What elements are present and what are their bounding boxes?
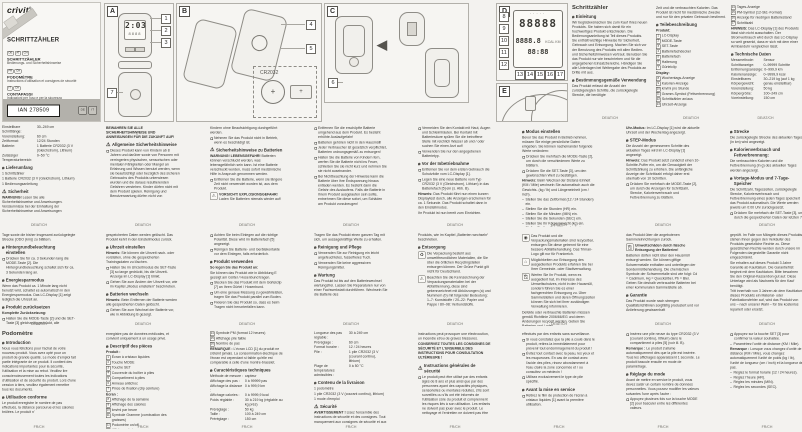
numbered-part-item: 9Kalorien-Anzeige	[656, 81, 726, 86]
band-lang-badge: IT	[89, 106, 98, 115]
manual-scan-page: crivit® SCHRITTZÄHLER DEATCH SCHRITTZÄHL…	[0, 0, 802, 432]
section-marker-icon	[418, 162, 421, 165]
section-heading-text: Sicherheitshinweise zu Batterien	[216, 147, 282, 153]
icon-paragraph-body: Das Produkt und die Verpackungsmateriali…	[531, 234, 594, 256]
part-number: 14	[731, 5, 736, 10]
figure-label: E	[499, 86, 510, 97]
lang-badge: CH	[13, 86, 20, 91]
part-number: 2	[106, 360, 111, 365]
part-number: 12	[656, 97, 661, 102]
group-subtitle: Indicazioni per l'uso e per la sicurezza	[7, 97, 98, 101]
part-number: 1	[106, 355, 111, 360]
column-content: Einstellbare Schrittlänge:30–249 cmVorei…	[2, 125, 76, 214]
callout-line	[281, 24, 305, 25]
column: instructions peut provoquer une électroc…	[418, 330, 492, 429]
section-heading: Bestimmungsgemäße Verwendung	[572, 78, 648, 84]
spec-label: Zulässiger Temperaturbereich:	[2, 153, 37, 162]
paragraph: Die Anzahl der gemessenen Schritte des a…	[626, 144, 700, 158]
part-name: Touche MODE	[112, 360, 135, 365]
part-name: Affichage de la semaine	[112, 397, 149, 402]
notice-lead: Uhr-Modus:	[626, 126, 646, 130]
warning-icon: ⚠	[106, 142, 110, 147]
part-name: Écran à cristaux liquides	[112, 355, 150, 360]
section-heading-text: Wartung	[318, 272, 335, 278]
notice-paragraph: WARNUNG! LEBENSGEFAHR! Batterien können …	[210, 153, 284, 176]
warning-icon: ⚠	[418, 365, 422, 370]
bullet-item: Fixieren Sie das Produkt so, dass es bei…	[210, 300, 284, 309]
section-heading: Energiesparmodus	[2, 277, 76, 283]
spec-row: Poids réglable :30 à 219 kg (réglable au…	[210, 398, 284, 407]
part-name: Compartiment à piles	[112, 376, 145, 381]
paragraph: Nous vous félicitons pour l'achat de vot…	[2, 346, 76, 391]
figure-label: A	[107, 6, 118, 17]
spec-row: Voreinstellung:60 cm	[2, 134, 76, 139]
dash-item: Paramétrez l'unité de distance (KM / Mil…	[730, 341, 802, 346]
section-heading: Introduction	[2, 340, 76, 346]
paragraph: 1 Bedienungsanleitung	[2, 181, 76, 186]
callout-number: 6	[328, 78, 338, 88]
notice-lead: Hinweis:	[106, 298, 120, 302]
column: Modus einstellenBevor Sie das Produkt in…	[522, 124, 596, 227]
bullet-item: Entfernen Sie die Batterie, wenn sie län…	[210, 177, 284, 191]
section-heading-text: Sécurité	[320, 404, 337, 410]
column-title: Podomètre	[2, 330, 76, 337]
spec-value: 0 à 999,9 km	[245, 384, 284, 393]
column-content: Longueur des pas réglable :30 à 249 cmPr…	[314, 331, 388, 424]
spec-label: Voreinstellung:	[731, 96, 764, 101]
battery-type-label: CR2032	[260, 70, 278, 76]
section-heading-text: Introduction	[6, 340, 31, 346]
column-footer: DE/AT/CH	[333, 224, 370, 228]
part-name: Anzeige für niedrigen Batteriestand	[737, 16, 792, 21]
icon-paragraph-body: Laden Sie Batterien niemals wieder auf!	[219, 197, 281, 201]
part-number: 9	[656, 81, 661, 86]
section-heading-text: Contenu de la livraison	[318, 379, 365, 385]
notice-lead: WARNUNG! LEBENSGEFAHR!	[210, 154, 261, 158]
language-group-fr: FRCH PODOMÈTRE Instructions d'utilisatio…	[7, 65, 98, 83]
bullet-item: Legen Sie eine neue Batterie vom Typ CR2…	[418, 177, 492, 191]
part-name: SET-Taste	[662, 44, 678, 49]
battery-cell-icon: +	[261, 80, 285, 104]
device-screen: 2:03 8888	[124, 20, 146, 40]
section-marker-icon	[210, 260, 213, 263]
column: Vermeiden Sie den Kontakt mit Haut, Auge…	[418, 124, 492, 227]
column-footer: DE/AT/CH	[541, 224, 578, 228]
numbered-part-item: 4Couvercle du boîtier à piles	[106, 370, 180, 375]
section-heading-text: Descriptif des pièces	[110, 343, 153, 349]
spec-value: 30–249 cm	[37, 125, 76, 134]
paragraph: effectués par des enfants sans surveilla…	[522, 332, 596, 337]
time-digits: 88:88	[514, 48, 562, 56]
figure-c-panel: C 6 ◀	[324, 3, 469, 103]
part-name: Symbole Gramme (combustion des graisses)	[112, 413, 180, 422]
holster-slot	[407, 22, 417, 36]
column-footer: DE/AT/CH	[674, 117, 709, 121]
section-marker-icon	[731, 53, 734, 56]
spec-label: Préréglage :	[314, 340, 349, 345]
column-footer: DE/AT/CH	[437, 323, 474, 327]
section-heading-text: Batterien wechseln	[110, 291, 149, 297]
language-group-it: ITCH CONTAPASSI Indicazioni per l'uso e …	[7, 82, 98, 100]
bullet-item: Bei Nichtbeachtung der Hinweise kann die…	[314, 174, 388, 206]
bullet-item: Entfernen Sie vor dem ersten Gebrauch di…	[418, 167, 492, 176]
column-content: enregistre pas de données médicales, et …	[106, 332, 180, 430]
paragraph: Avant de mettre en service le produit, v…	[626, 378, 700, 396]
dash-item: Réglez le format horaire (12 / 24 heures…	[730, 370, 802, 375]
paragraph: Das Produkt erfasst die Anzahl der zurüc…	[572, 84, 648, 98]
section-marker-icon	[106, 293, 109, 296]
column-content: StreckeDie zurückgelegte Strecke des akt…	[730, 129, 802, 220]
section-heading-text: Caractéristiques techniques	[214, 368, 271, 374]
spec-label: Longueur des pas réglable :	[314, 331, 349, 340]
section-marker-icon	[2, 342, 5, 345]
paragraph: gespeicherten Daten werden gelöscht. Das…	[106, 233, 180, 242]
icon-paragraph: ⚠VORSICHT! EXPLOSIONSGEFAHR! Laden Sie B…	[210, 192, 284, 201]
cover-content: crivit® SCHRITTZÄHLER DEATCH SCHRITTZÄHL…	[3, 3, 100, 121]
section-heading-text: Garantie	[630, 292, 647, 298]
part-number: 10	[106, 408, 111, 413]
notice-paragraph: Hinweis: Sie können die Uhrzeit nach- od…	[106, 251, 180, 265]
column: StreckeDie zurückgelegte Strecke des akt…	[730, 124, 802, 227]
column-content: Achten Sie beim Einlegen auf die richtig…	[210, 233, 284, 309]
column-footer: FR/CH	[21, 426, 58, 430]
section-marker-icon	[626, 373, 629, 376]
belt-holster	[399, 12, 425, 46]
section-marker-icon	[210, 369, 213, 372]
section-marker-icon	[730, 177, 733, 180]
paragraph: Tage sowie die bisher insgesamt zurückge…	[2, 233, 76, 242]
column-footer: DE/AT/CH	[645, 224, 682, 228]
column: Zeit und die verbrauchten Kalorien. Das …	[656, 4, 726, 120]
column-content: Appuyez sur la touche SET [3] pour confi…	[730, 332, 802, 390]
section-marker-icon	[106, 345, 109, 348]
subheading: Display:	[656, 70, 726, 75]
section-heading: Vor der Inbetriebnahme	[418, 161, 492, 167]
spec-row: Longueur des pas réglable :30 à 249 cm	[314, 331, 388, 340]
part-name: Uhrzeit-Anzeige	[662, 102, 687, 107]
paragraph: Zeit und die verbrauchten Kalorien. Das …	[656, 6, 726, 20]
section-marker-icon	[730, 131, 733, 134]
numbered-part-item: 5Compartiment à piles	[106, 376, 180, 381]
spec-row: Zeitformat:12/24 Stunden	[2, 139, 76, 144]
callout-line	[281, 48, 305, 49]
numbered-part-item: 12Schrittzähler an/aus	[656, 97, 726, 102]
warning-section-heading: ⚠Sécurité	[314, 404, 388, 410]
section-heading-text: Hintergrundbeleuchtung einstellen	[6, 244, 76, 255]
column-content: Uhr-Modus: Im LC-Display [1] wird die ak…	[626, 126, 700, 200]
warning-section-heading: ⚠Instructions générales de sécurité	[418, 362, 492, 373]
warning-icon: ⚠	[418, 275, 426, 283]
column-content: Produkts, wie im Kapitel „Batterien wech…	[418, 233, 492, 307]
column-footer: FR/CH	[125, 426, 162, 430]
spec-row: Pile :1 pile CR2032 (3 V (courant contin…	[314, 349, 388, 363]
numbered-part-item: 17Schrittzahl	[731, 21, 800, 26]
spec-label: Zeitformat:	[2, 139, 37, 144]
part-name: Affichage des calories	[112, 402, 146, 407]
numbered-part-item: 6Anneau antichoc	[106, 381, 180, 386]
clock-display: 2:03	[125, 21, 145, 31]
part-name: Anneau antichoc	[112, 381, 138, 386]
part-number: 8	[106, 397, 111, 402]
dash-item: Réglez les minutes (MIN).	[730, 380, 802, 385]
language-codes: DEATCH	[7, 47, 98, 56]
section-heading-text: Reinigung und Pflege	[318, 244, 362, 250]
column: Appuyez sur la touche SET [3] pour confi…	[730, 330, 802, 429]
notice-paragraph: Remarque : Le produit s'allume automatiq…	[626, 346, 700, 369]
part-name: km/mi par heure	[112, 407, 137, 412]
spec-label: Batterie:	[2, 143, 37, 152]
assembly-arrow-icon: ◀	[377, 38, 387, 51]
bullet-item: Appuyez sur la touche SET [3] pour confi…	[730, 332, 802, 341]
part-number: 17	[731, 21, 736, 26]
section-heading-text: Instructions générales de sécurité	[424, 362, 492, 373]
part-name: Halterung	[662, 59, 677, 64]
numbered-part-item: 16Anzeige für niedrigen Batteriestand	[731, 16, 800, 21]
part-name: Pince de fixation (clip ceinture)	[112, 386, 160, 391]
notice-paragraph: WARNUNG! Lesen Sie alle Sicherheitshinwe…	[2, 195, 76, 213]
language-codes: ITCH	[7, 82, 98, 91]
paragraph: Tritt innerhalb von 3 Jahren ab dem Kauf…	[730, 289, 802, 312]
part-number: 8	[656, 76, 661, 81]
part-number: 3	[106, 365, 111, 370]
numbered-part-item: 16Nombre de pas	[210, 342, 284, 347]
column-footer: DE/AT/CH	[541, 323, 578, 327]
bullet-item: Si vous constatez que la pile a coulé da…	[522, 337, 596, 351]
spec-value: 12 / 24 heures	[349, 345, 388, 350]
section-heading-text: Produkt verwenden	[214, 258, 253, 264]
spec-row: Plage de températures admissibles :0 à 5…	[314, 363, 388, 377]
section-heading-text: Vor der Inbetriebnahme	[422, 161, 469, 167]
dash-item: Stellen Sie das Zeitformat (12 / 24 Stun…	[522, 198, 596, 207]
callout-number: 3	[161, 38, 171, 48]
bullet-item: Jeder Verbraucher ist gesetzlich verpfli…	[314, 145, 388, 154]
bullet-item: Gehen Sie zum Ändern der Uhrzeit vor, wi…	[106, 279, 180, 288]
section-heading-text: Lieferumfang	[6, 164, 33, 170]
part-name: MODE-Taste	[662, 38, 682, 43]
part-number: 6	[656, 60, 661, 65]
section-heading-text: Strecke	[734, 129, 749, 135]
column-footer: FR/CH	[749, 426, 786, 430]
subheading: Produkt:	[656, 28, 726, 33]
clock-subdisplay: 8888	[125, 31, 145, 36]
section-heading-text: Allgemeine Sicherheitshinweise	[112, 142, 177, 148]
section-marker-icon	[314, 246, 317, 249]
battery-detail-inset: CR2032 + +	[253, 66, 317, 118]
paragraph: Produkts, wie im Kapitel „Batterien wech…	[418, 233, 492, 242]
column-content: 14Symbole PM (format 12 heures)15Afficha…	[210, 331, 284, 421]
figure-a-panel: A 2:03 8888 1 2 3 7	[104, 3, 174, 122]
part-name: Wochentags-Anzeige	[662, 76, 695, 81]
language-codes: FRCH	[7, 65, 98, 74]
notice-paragraph: Hinweis: Das Produkt führt nun einen kur…	[418, 191, 492, 209]
dot-icon: ◉	[522, 234, 530, 242]
ian-number: IAN 278509	[7, 105, 60, 118]
column-footer: DE/AT/CH	[229, 224, 266, 228]
column: Uhr-Modus: Im LC-Display [1] wird die ak…	[626, 124, 700, 227]
paragraph: Wenn das Produkt ca. 1 Minute lang nicht…	[2, 283, 76, 301]
clip-rivet	[130, 89, 141, 100]
spec-label: Einstellbare Schrittlänge:	[2, 125, 37, 134]
bullet-item: Gehen Sie zum Wechsel der Batterie vor, …	[106, 307, 180, 316]
paragraph: Kindern ohne Beaufsichtigung durchgeführ…	[210, 126, 284, 135]
battery-cover-shell	[182, 18, 238, 90]
bullet-item: Dieses Produkt kann von Kindern ab 8 Jah…	[106, 149, 180, 199]
part-name: Batteriefach	[662, 54, 681, 59]
column: effectués par des enfants sans surveilla…	[522, 330, 596, 429]
column-footer: DE/AT/CH	[229, 323, 266, 327]
column-footer: DE/AT/CH	[437, 224, 474, 228]
spec-value: 1 Batterie CR2032 (3 V (Gleichstrom), Li…	[37, 143, 76, 152]
battery-in-device	[250, 33, 269, 52]
paragraph: instructions peut provoquer une électroc…	[418, 332, 492, 341]
notice-paragraph: AVERTISSEMENT ! Lisez l'ensemble des ins…	[314, 410, 388, 424]
warning-icon: ⚠	[314, 404, 318, 409]
spec-label: Poids réglable :	[210, 398, 245, 407]
section-heading: Réglage du mode	[626, 371, 700, 377]
figure-label: C	[327, 6, 338, 17]
column-footer: DE/AT/CH	[21, 323, 58, 327]
spec-label: Pile :	[314, 349, 349, 363]
figure-d-panel: D 8 9 10 11 12 ····· 88888 8888.8 KCAL K…	[496, 3, 568, 81]
house-icon: ⌂	[522, 257, 530, 265]
section-marker-icon	[572, 79, 575, 82]
notice-lead: VORSICHT! EXPLOSIONSGEFAHR!	[219, 192, 278, 196]
bullet-item: Drücken Sie die SET-Taste [3], um den ge…	[522, 169, 596, 178]
part-number: 3	[656, 44, 661, 49]
spec-value: 30 à 249 cm	[349, 331, 388, 340]
subheading: Komplette Zurücksetzung:	[2, 311, 76, 316]
part-name: Schrittzähler an/aus	[662, 97, 693, 102]
column-content: PodomètreIntroductionNous vous féliciton…	[2, 330, 76, 415]
column-title: Schrittzähler	[572, 4, 648, 11]
paragraph: enregistre pas de données médicales, et …	[106, 332, 180, 341]
column-footer: DE/AT/CH	[333, 323, 370, 327]
notice-paragraph: HINWEIS: Das LC-Display [1] des Produkts…	[731, 26, 800, 49]
section-marker-icon	[2, 246, 5, 249]
column-footer: FR/CH	[229, 426, 266, 430]
warning-icon: ⚠	[210, 147, 214, 152]
column-content: Tage sowie die bisher insgesamt zurückge…	[2, 233, 76, 325]
subheading: Écran :	[106, 392, 180, 397]
column: geprüft. Im Falle von Mängeln dieses Pro…	[730, 231, 802, 326]
section-heading-text: STEP-Modus	[630, 137, 656, 143]
paragraph: Batterien dürfen nicht über den Hausmüll…	[626, 253, 700, 289]
paragraph: Die zurückgelegte Strecke des aktuellen …	[730, 136, 802, 145]
column-footer: DE/AT/CH	[748, 117, 783, 121]
device-back-view	[118, 72, 152, 117]
step-digits: 88888	[514, 17, 562, 30]
warning-section-heading: ⚠Sicherheit	[2, 189, 76, 195]
numbered-part-item: 8Wochentags-Anzeige	[656, 76, 726, 81]
section-heading-text: Produkt zurücksetzen	[6, 304, 50, 310]
spec-value: 150 cm	[245, 417, 284, 422]
callout-line	[150, 42, 161, 43]
section-heading: Strecke	[730, 129, 802, 135]
dash-item: Réglez l'heure (HR).	[730, 375, 802, 380]
device-in-holster	[425, 48, 459, 98]
spec-row: Affichage la distance :0 à 999,9 km	[210, 384, 284, 393]
column: Tage sowie die bisher insgesamt zurückge…	[2, 231, 76, 326]
column-content: Tragen Sie das Produkt einen ganzen Tag …	[314, 233, 388, 297]
icon-paragraph-text: VORSICHT! EXPLOSIONSGEFAHR! Laden Sie Ba…	[219, 192, 284, 201]
part-number: 4	[106, 371, 111, 376]
numbered-part-item: 2MODE-Taste	[656, 38, 726, 43]
section-heading: Wartung	[314, 272, 388, 278]
column-content: Zeit und die verbrauchten Kalorien. Das …	[656, 6, 726, 107]
bullet-item: Achten Sie beim Einlegen auf die richtig…	[210, 233, 284, 247]
paragraph: Tragen Sie das Produkt einen ganzen Tag …	[314, 233, 388, 242]
notice-lead: Hinweis:	[418, 192, 432, 196]
section-heading: Descriptif des pièces	[106, 343, 180, 349]
section-heading-text: Sicherheit	[8, 189, 29, 195]
paragraph: Sie erhalten auf dieses Produkt 3 Jahre …	[730, 261, 802, 288]
lang-badge: CH	[15, 69, 22, 74]
notice-paragraph: Hinweis: Beim Wechsel der Distanz-Einhei…	[522, 179, 596, 197]
column-content: geprüft. Im Falle von Mängeln dieses Pro…	[730, 233, 802, 312]
notice-lead: Hinweis:	[626, 159, 640, 163]
part-number: 5	[106, 376, 111, 381]
part-name: Gramm-Symbol (Fettverbrennung)	[662, 91, 715, 96]
numbered-part-item: 15PM-Symbol (12-Std.-Format)	[731, 10, 800, 15]
lang-badge: FR	[7, 69, 14, 74]
spec-value: 60 cm	[37, 134, 76, 139]
part-number: 15	[210, 337, 215, 342]
section-heading-text: Kalorienverbrauch und Fettverbrennung:	[734, 147, 802, 158]
notice-lead: Hinweis:	[522, 179, 536, 183]
part-name: Kalorien-Anzeige	[662, 81, 689, 86]
paragraph: Das Produkt wurde nach strengen Qualität…	[626, 299, 700, 313]
paragraph: 1 pile CR2032 (3 V (courant continu), li…	[314, 391, 388, 396]
section-heading-text: Vortage-Modus und 7-Tage-Speicher	[734, 175, 802, 186]
column: PodomètreIntroductionNous vous féliciton…	[2, 330, 76, 429]
numbered-part-item: 1LC-Display	[656, 33, 726, 38]
clip-plate	[343, 25, 365, 57]
spec-value: 60 cm	[349, 340, 388, 345]
notice-paragraph: Hinweis: Beim Entfernen der Batterie wer…	[106, 298, 180, 307]
column-content: Entfernen Sie die erschöpfte Batterie um…	[314, 126, 388, 206]
paragraph: Le produit enregistre le nombre de pas e…	[2, 401, 76, 415]
section-heading: Modus einstellen	[522, 129, 596, 135]
column-footer: FR/CH	[437, 426, 474, 430]
display-detail: ····· 88888 8888.8 KCAL KM 88:88	[513, 10, 563, 68]
ian-band: IAN 278509 DE IT	[3, 99, 100, 121]
section-heading-text: Uhrzeit einstellen	[110, 244, 145, 250]
section-heading-text: Bestimmungsgemäße Verwendung	[576, 78, 647, 84]
section-heading: Produkt zurücksetzen	[2, 304, 76, 310]
callout-number: 15	[535, 70, 545, 80]
cover-page: crivit® SCHRITTZÄHLER DEATCH SCHRITTZÄHL…	[2, 2, 101, 122]
lang-badge: DE	[7, 51, 14, 56]
spec-row: Préréglage :60 cm	[314, 340, 388, 345]
section-marker-icon	[2, 306, 5, 309]
callout-number: 16	[545, 70, 555, 80]
notice-lead: Remarque :	[626, 346, 645, 350]
column: 14Symbole PM (format 12 heures)15Afficha…	[210, 330, 284, 429]
part-name: Nombre de pas	[216, 342, 240, 347]
column-content: instructions peut provoquer une électroc…	[418, 332, 492, 416]
column: SchrittzählerEinleitungWir beglückwünsch…	[572, 4, 648, 120]
bullet-item: Drücken Sie mehrfach die MODE-Taste [2],…	[626, 181, 700, 199]
column-content: ◉Das Produkt und die Verpackungsmaterial…	[522, 234, 596, 327]
icon-paragraph-text: Möglichkeiten zur Entsorgung des ausgedi…	[531, 257, 596, 271]
column-content: BEWAHREN SIE ALLE SICHERHEITSHINWEISE UN…	[106, 126, 180, 199]
column-footer: FR/CH	[541, 426, 578, 430]
uppercase-note: BEWAHREN SIE ALLE SICHERHEITSHINWEISE UN…	[106, 126, 180, 140]
lang-badge: IT	[7, 86, 12, 91]
column-content: gespeicherten Daten werden gelöscht. Das…	[106, 233, 180, 317]
column-footer: FR/CH	[645, 426, 682, 430]
spec-value: 12/24 Stunden	[37, 139, 76, 144]
